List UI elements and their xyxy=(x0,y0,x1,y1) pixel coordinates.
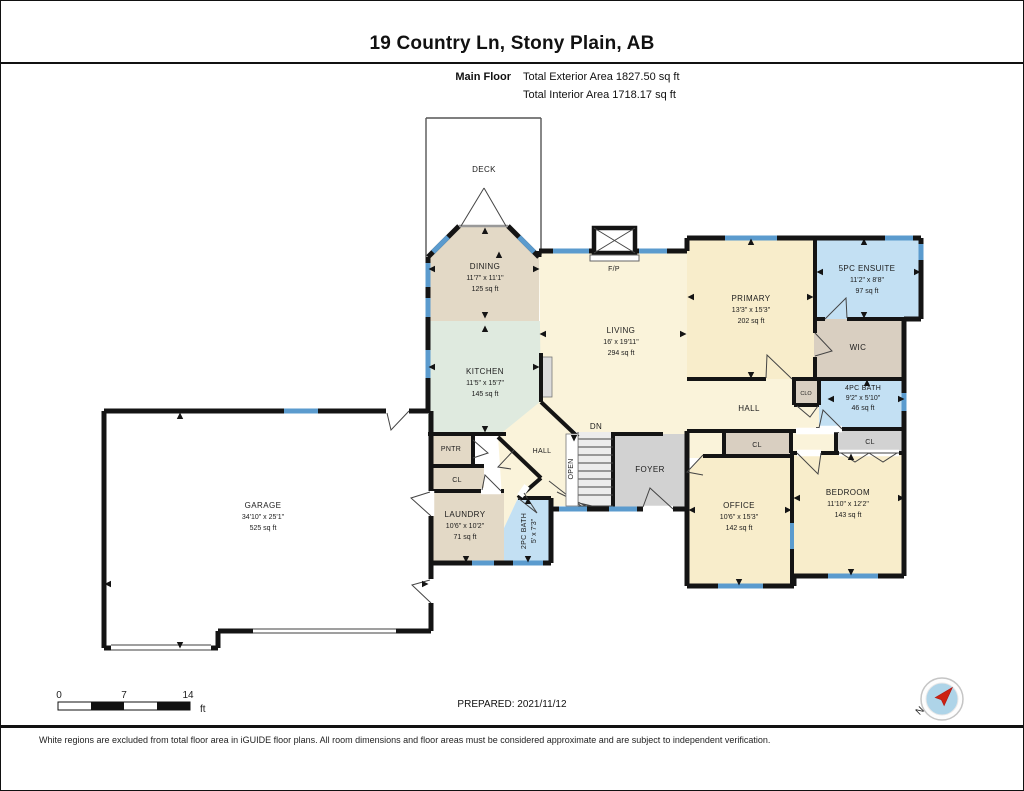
bedroom-name: BEDROOM xyxy=(826,488,870,497)
bath4-area: 46 sq ft xyxy=(852,405,875,412)
hall-label: HALL xyxy=(738,404,760,413)
deck-label: DECK xyxy=(472,165,496,174)
laundry-name: LAUNDRY xyxy=(445,510,486,519)
dining-area: 125 sq ft xyxy=(472,286,499,293)
kitchen-dims: 11'5" x 15'7" xyxy=(466,380,504,387)
dining-name: DINING xyxy=(470,262,500,271)
bedroom-area: 143 sq ft xyxy=(835,512,862,519)
hall-bedroom-fill xyxy=(791,431,836,453)
primary-area: 202 sq ft xyxy=(738,318,765,325)
ensuite-area: 97 sq ft xyxy=(856,288,879,295)
fireplace-label: F/P xyxy=(608,266,620,273)
kitchen-area: 145 sq ft xyxy=(472,391,499,398)
bedroom-dims: 11'10" x 12'2" xyxy=(827,501,869,508)
floor-plan-drawing: DECK DINING 11'7" x 11'1" 125 sq ft KITC… xyxy=(1,1,1024,791)
office-name: OFFICE xyxy=(723,501,755,510)
bath4-name: 4PC BATH xyxy=(845,385,881,392)
laundry-dims: 10'6" x 10'2" xyxy=(446,523,485,530)
garage-area: 525 sq ft xyxy=(250,525,277,532)
pantry-label: PNTR xyxy=(441,446,461,453)
garage-doors xyxy=(111,629,396,650)
primary-name: PRIMARY xyxy=(731,294,770,303)
foyer-label: FOYER xyxy=(635,465,665,474)
hall-small-label: HALL xyxy=(533,448,552,455)
bath2-name: 2PC BATH xyxy=(521,513,528,549)
media-unit xyxy=(542,357,552,397)
office-fill xyxy=(687,456,791,586)
primary-dims: 13'3" x 15'3" xyxy=(732,307,771,314)
ensuite-name: 5PC ENSUITE xyxy=(839,264,896,273)
prepared-date: PREPARED: 2021/11/12 xyxy=(1,699,1023,710)
floor-plan-page: 19 Country Ln, Stony Plain, AB Main Floo… xyxy=(0,0,1024,791)
disclaimer-text: White regions are excluded from total fl… xyxy=(39,735,770,745)
stairs-dn-label: DN xyxy=(590,422,602,431)
laundry-area: 71 sq ft xyxy=(454,534,477,541)
living-name: LIVING xyxy=(607,326,636,335)
patio-door xyxy=(459,188,508,226)
clo-label: CLO xyxy=(800,391,812,397)
ensuite-dims: 11'2" x 8'8" xyxy=(850,277,884,284)
garage-dims: 34'10" x 25'1" xyxy=(242,514,285,521)
garage-name: GARAGE xyxy=(245,501,282,510)
office-area: 142 sq ft xyxy=(726,525,753,532)
wic-label: WIC xyxy=(850,343,867,352)
dining-dims: 11'7" x 11'1" xyxy=(466,275,504,282)
living-area: 294 sq ft xyxy=(608,350,635,357)
office-dims: 10'6" x 15'3" xyxy=(720,514,759,521)
living-dims: 16' x 19'11" xyxy=(603,339,639,346)
kitchen-name: KITCHEN xyxy=(466,367,504,376)
footer-divider xyxy=(1,725,1023,728)
cl-office-label: CL xyxy=(752,442,762,449)
bath2-dims: 5' x 7'3" xyxy=(531,518,538,543)
fireplace xyxy=(590,228,639,261)
cl-bedroom-label: CL xyxy=(865,439,875,446)
stairs-open-label: OPEN xyxy=(568,458,575,479)
cl-laundry-label: CL xyxy=(452,477,462,484)
bath4-dims: 9'2" x 5'10" xyxy=(846,395,881,402)
hall-left-fill xyxy=(687,431,724,458)
hall-clo-fill xyxy=(794,405,819,429)
